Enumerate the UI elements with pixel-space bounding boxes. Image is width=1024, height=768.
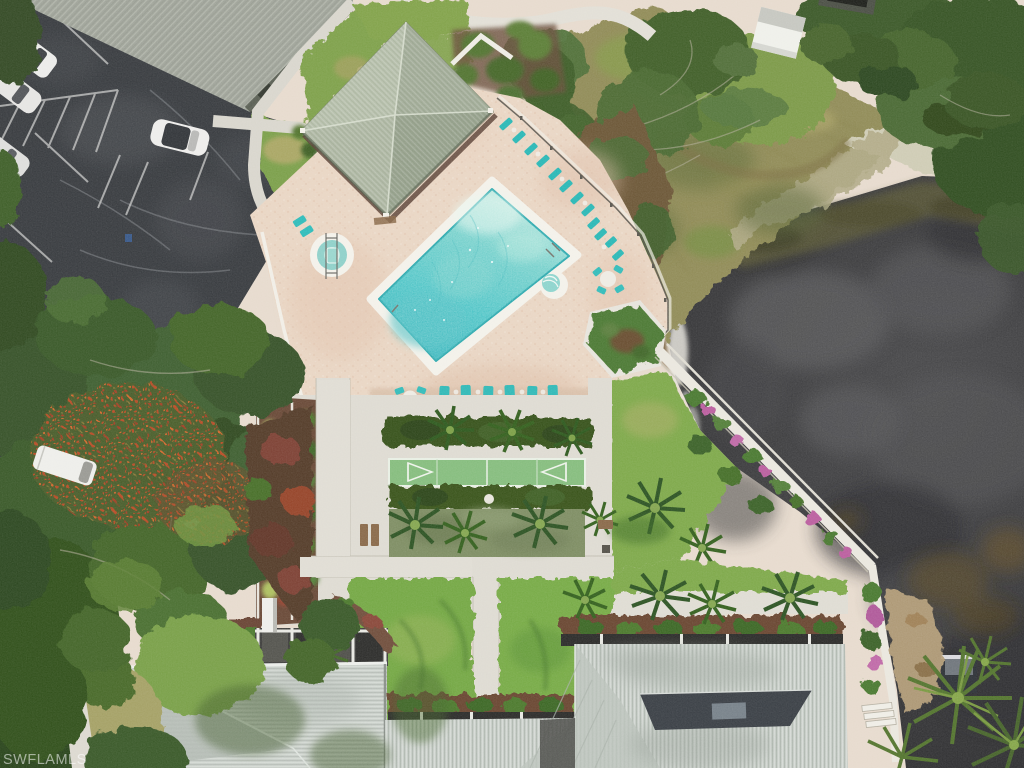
svg-text:SWFLAMLS: SWFLAMLS [3,752,87,768]
